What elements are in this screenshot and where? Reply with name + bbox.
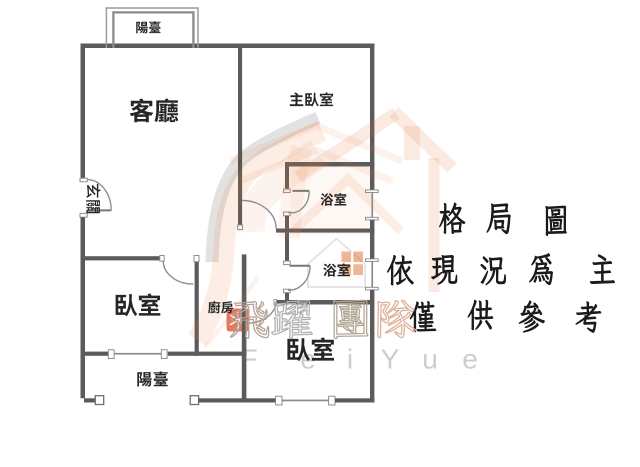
- svg-text:Y: Y: [381, 344, 400, 375]
- svg-text:u: u: [422, 344, 438, 375]
- svg-text:e: e: [462, 344, 478, 375]
- svg-text:i: i: [347, 344, 353, 375]
